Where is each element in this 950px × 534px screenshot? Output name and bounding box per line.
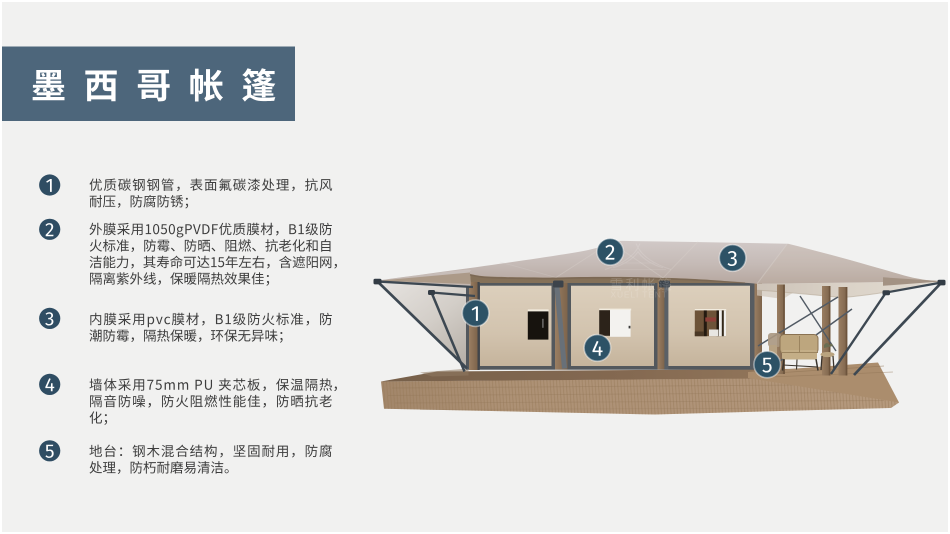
svg-text:XUELI TENT: XUELI TENT: [611, 290, 668, 300]
